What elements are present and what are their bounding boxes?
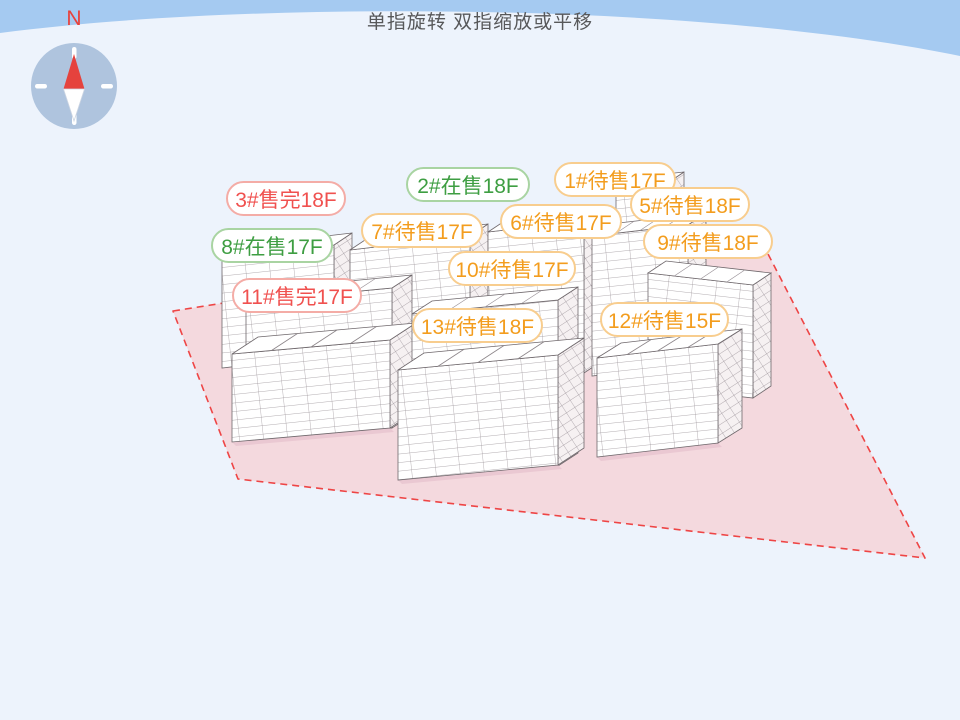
compass[interactable]: N [28,40,120,132]
building-label-3[interactable]: 3#售完18F [226,181,346,216]
building-label-9[interactable]: 9#待售18F [643,224,773,259]
gesture-hint-text: 单指旋转 双指缩放或平移 [0,7,960,34]
building-label-11[interactable]: 11#售完17F [232,278,362,313]
scene-3d-canvas[interactable] [0,0,960,720]
building-label-10[interactable]: 10#待售17F [448,251,576,286]
building-map-view: 单指旋转 双指缩放或平移 N 1#待售17F 2#在售18F 3#售完18F 5… [0,0,960,720]
compass-north-label: N [28,7,120,31]
building-label-2[interactable]: 2#在售18F [406,167,530,202]
building-label-12[interactable]: 12#待售15F [600,302,729,337]
building-label-5[interactable]: 5#待售18F [630,187,750,222]
building-model-12[interactable] [597,329,742,461]
building-label-7[interactable]: 7#待售17F [361,213,483,248]
building-label-8[interactable]: 8#在售17F [211,228,333,263]
compass-dial-icon [28,40,120,132]
building-label-13[interactable]: 13#待售18F [412,308,543,343]
building-label-6[interactable]: 6#待售17F [500,204,622,239]
